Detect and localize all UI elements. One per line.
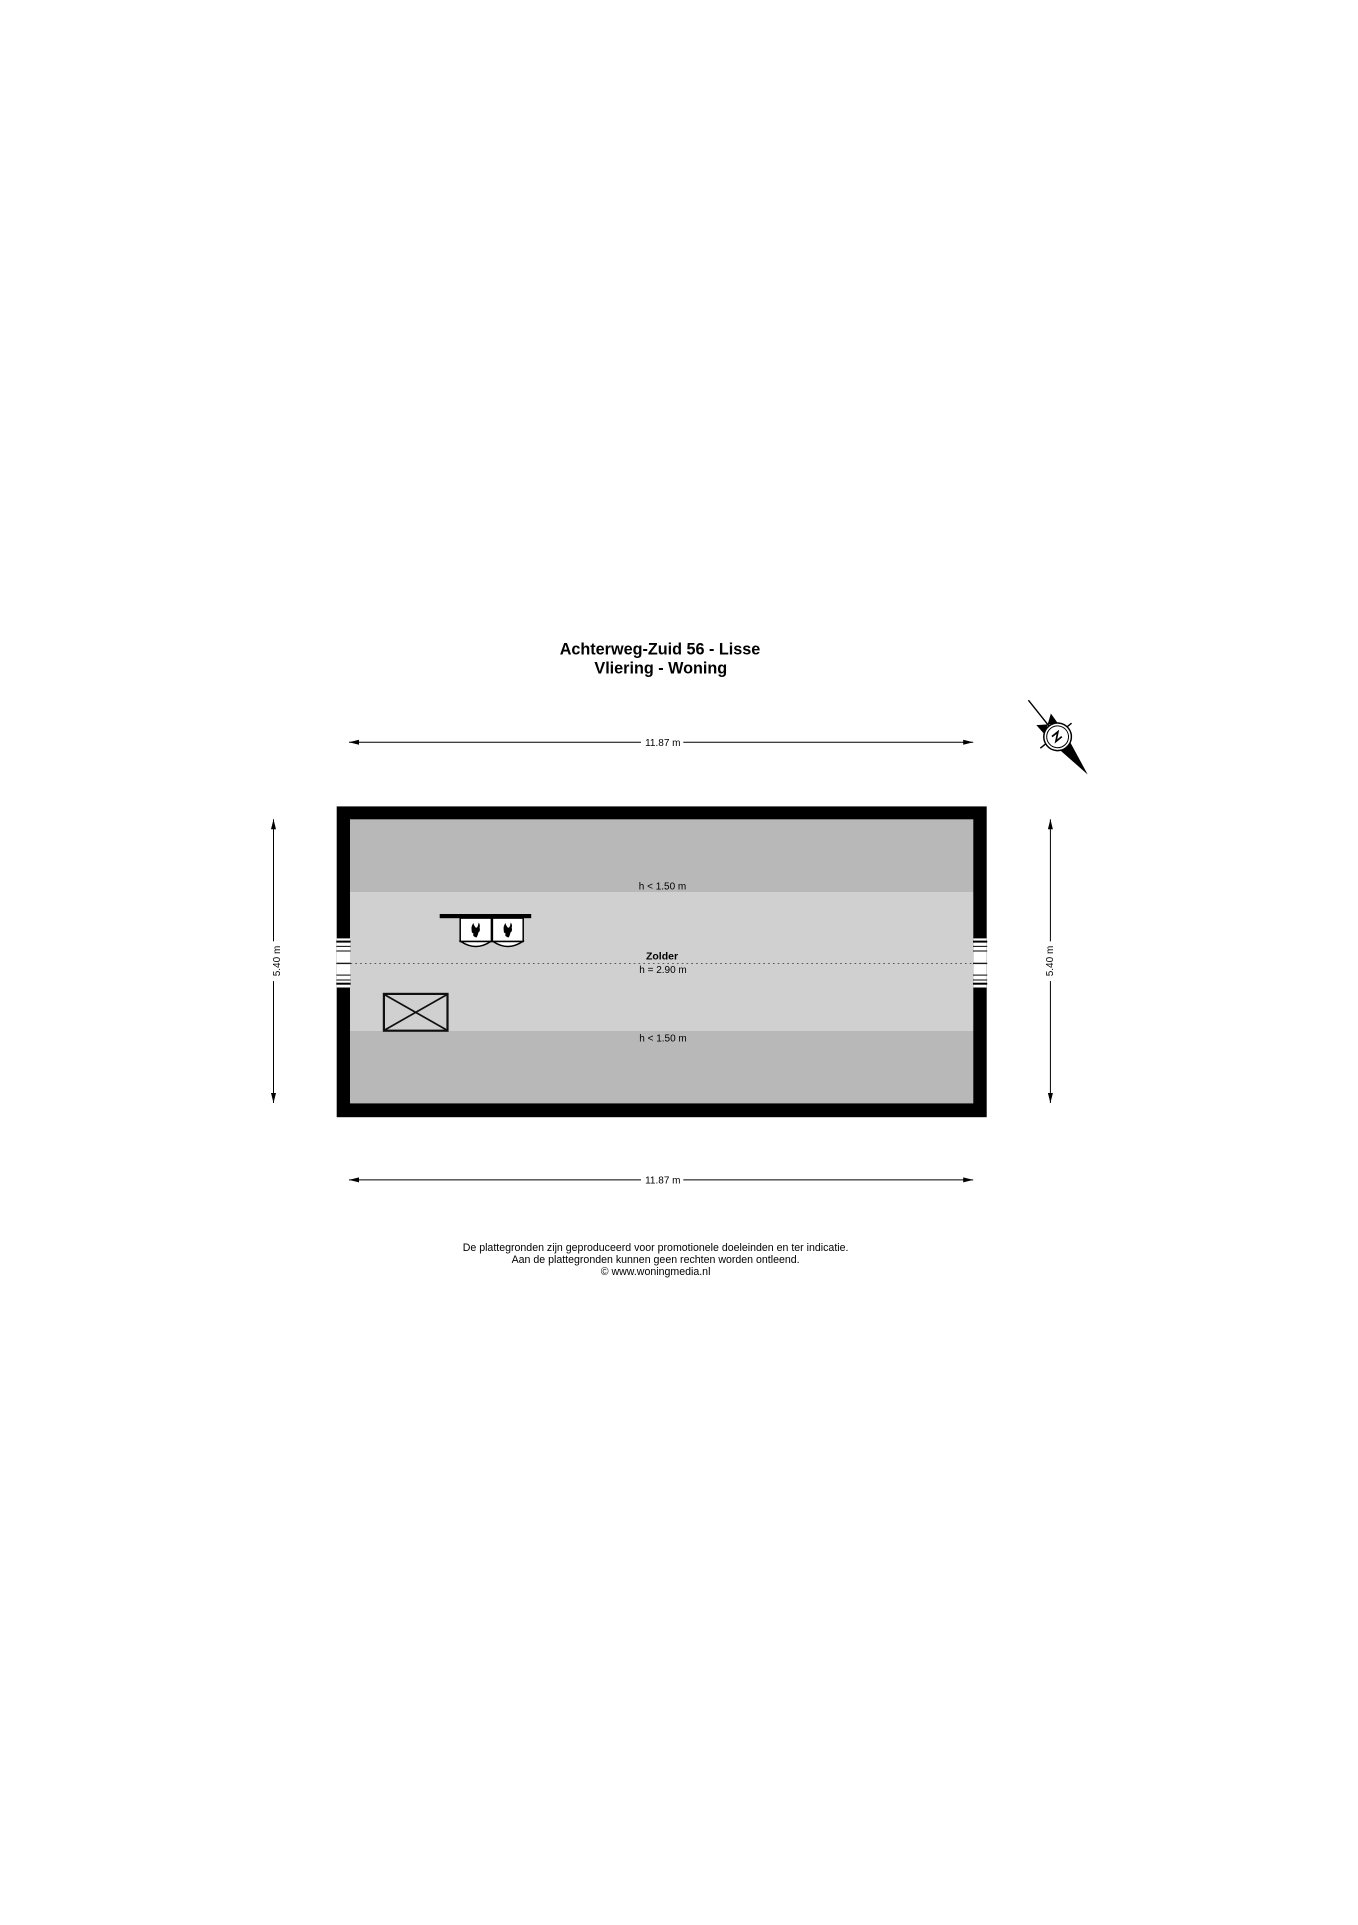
svg-text:5.40 m: 5.40 m: [272, 946, 283, 977]
svg-text:h < 1.50 m: h < 1.50 m: [639, 1033, 687, 1044]
svg-text:11.87 m: 11.87 m: [645, 1175, 680, 1186]
svg-text:5.40 m: 5.40 m: [1045, 946, 1056, 977]
svg-text:11.87 m: 11.87 m: [645, 738, 680, 749]
svg-text:De plattegronden zijn geproduc: De plattegronden zijn geproduceerd voor …: [463, 1242, 849, 1254]
svg-text:© www.woningmedia.nl: © www.woningmedia.nl: [601, 1266, 711, 1278]
svg-text:Zolder: Zolder: [646, 951, 678, 963]
svg-text:Aan de plattegronden kunnen ge: Aan de plattegronden kunnen geen rechten…: [512, 1254, 800, 1266]
svg-text:h < 1.50 m: h < 1.50 m: [639, 882, 687, 893]
svg-text:Achterweg-Zuid 56 - Lisse: Achterweg-Zuid 56 - Lisse: [560, 641, 761, 659]
svg-text:Vliering - Woning: Vliering - Woning: [594, 659, 727, 677]
svg-text:h = 2.90 m: h = 2.90 m: [639, 965, 687, 976]
